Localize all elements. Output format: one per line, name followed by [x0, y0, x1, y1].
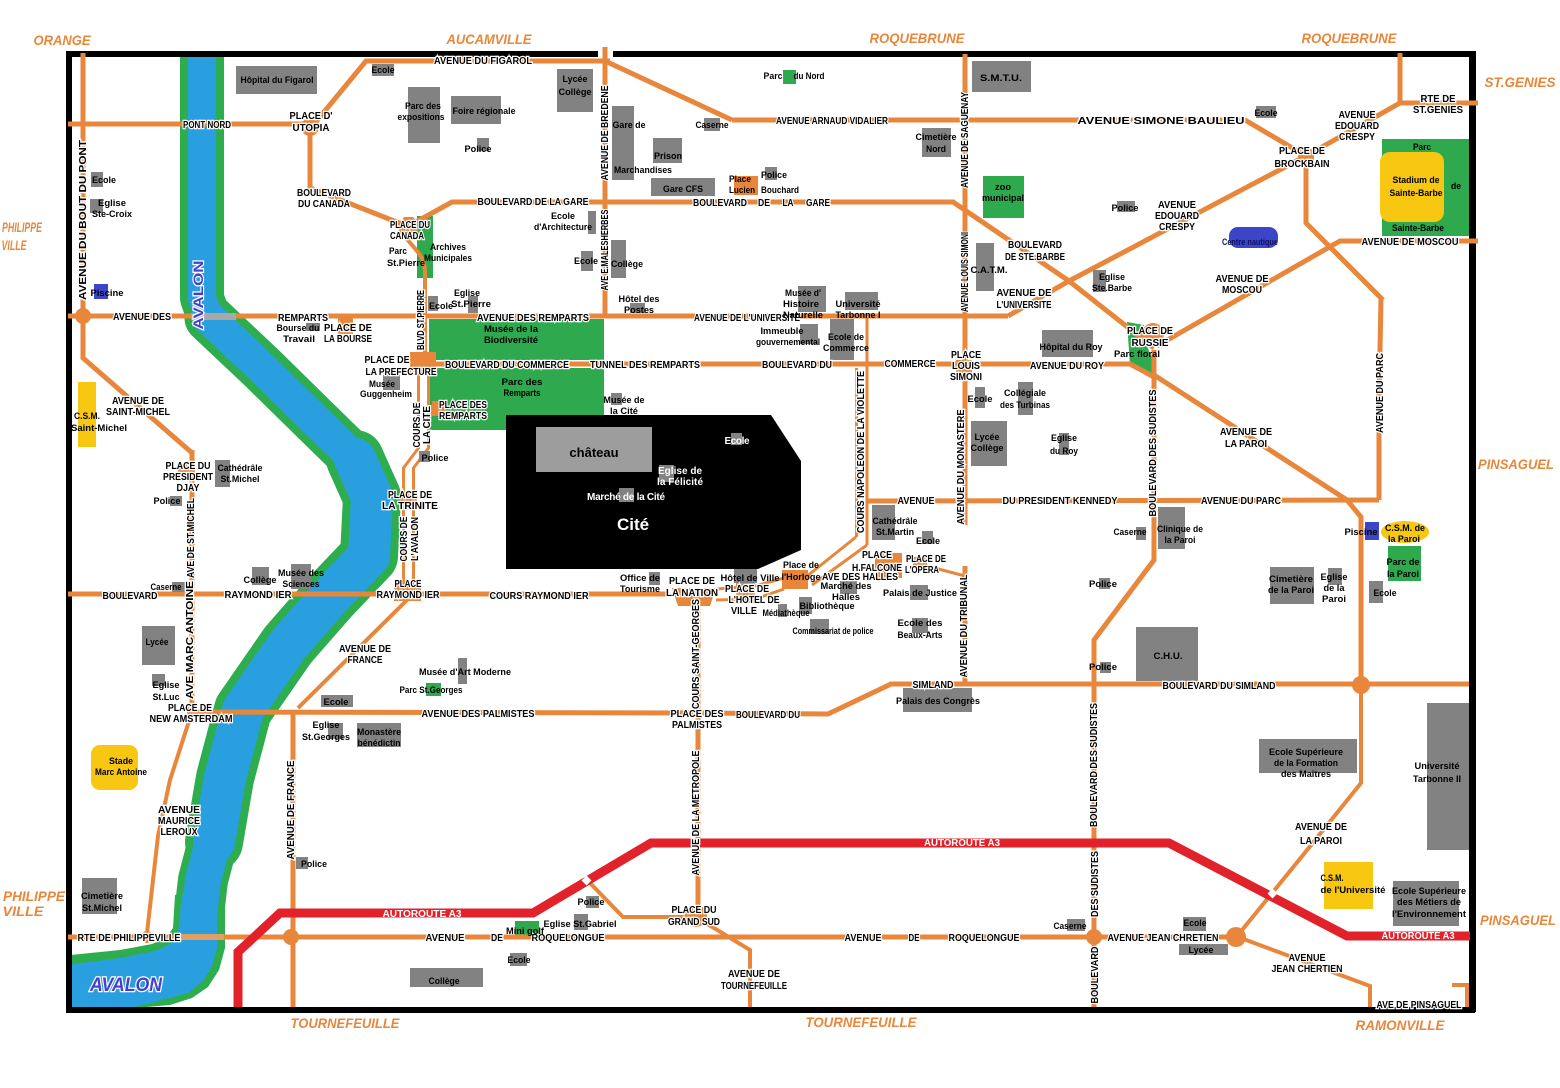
svg-text:PLACE DE: PLACE DE — [365, 355, 410, 366]
svg-text:Collège: Collège — [559, 87, 592, 98]
svg-text:PLACE DE: PLACE DE — [168, 703, 212, 714]
svg-text:L'UNIVERSITE: L'UNIVERSITE — [997, 300, 1052, 311]
svg-text:Parc: Parc — [764, 71, 783, 82]
svg-text:Gare de: Gare de — [613, 120, 646, 131]
svg-text:la Félicité: la Félicité — [657, 477, 703, 488]
svg-text:ROQUELONGUE: ROQUELONGUE — [949, 933, 1020, 944]
svg-text:Ecole: Ecole — [324, 697, 349, 708]
svg-text:Marchandises: Marchandises — [614, 165, 672, 176]
svg-text:Ecole: Ecole — [429, 301, 453, 312]
svg-text:Gare CFS: Gare CFS — [663, 184, 703, 195]
svg-text:PLACE DE: PLACE DE — [906, 554, 946, 565]
svg-text:AVENUE ARNAUD VIDALIER: AVENUE ARNAUD VIDALIER — [776, 116, 889, 127]
svg-text:AVENUE JEAN CHRETIEN: AVENUE JEAN CHRETIEN — [1108, 933, 1219, 944]
svg-text:Marché des: Marché des — [821, 581, 872, 592]
svg-text:AVENUE DE: AVENUE DE — [1295, 822, 1347, 833]
svg-text:PLACE DE: PLACE DE — [669, 576, 715, 587]
svg-text:Ecole Supérieure: Ecole Supérieure — [1269, 747, 1343, 758]
svg-text:BOULEVARD: BOULEVARD — [693, 198, 747, 209]
svg-text:RAYMOND IER: RAYMOND IER — [377, 590, 441, 601]
svg-text:municipal: municipal — [982, 193, 1024, 204]
svg-text:Université: Université — [1415, 761, 1460, 772]
svg-text:MOSCOU: MOSCOU — [1222, 285, 1262, 296]
svg-text:Piscine: Piscine — [91, 288, 124, 299]
svg-text:L'HOTEL DE: L'HOTEL DE — [729, 595, 780, 606]
svg-text:AUTOROUTE A3: AUTOROUTE A3 — [924, 838, 1000, 849]
svg-text:AVENUE LOUIS SIMONI: AVENUE LOUIS SIMONI — [960, 232, 971, 312]
svg-text:Musée de: Musée de — [604, 395, 645, 406]
svg-text:PLACE DU: PLACE DU — [166, 461, 211, 472]
svg-text:AUTOROUTE A3: AUTOROUTE A3 — [383, 909, 462, 920]
svg-text:Bourse du: Bourse du — [277, 323, 320, 334]
svg-text:BOULEVARD DES SUDISTES: BOULEVARD DES SUDISTES — [1148, 389, 1159, 516]
svg-text:Eglise: Eglise — [1321, 572, 1348, 583]
svg-text:Parc St.Georges: Parc St.Georges — [400, 685, 463, 696]
svg-text:JEAN CHERTIEN: JEAN CHERTIEN — [1272, 964, 1343, 975]
svg-text:COMMERCE: COMMERCE — [885, 359, 936, 370]
svg-text:Eglise: Eglise — [1051, 433, 1077, 444]
svg-text:C.H.U.: C.H.U. — [1154, 651, 1183, 662]
svg-text:AVENUE DE: AVENUE DE — [728, 969, 780, 980]
svg-text:DE STE.BARBE: DE STE.BARBE — [1005, 252, 1065, 263]
svg-text:Ecole: Ecole — [1255, 108, 1278, 119]
svg-text:Eglise: Eglise — [313, 720, 340, 731]
svg-text:PLACE D': PLACE D' — [290, 111, 333, 122]
svg-text:Eglise: Eglise — [454, 288, 480, 299]
svg-text:Parc des: Parc des — [405, 101, 441, 112]
svg-text:Bibliothèque: Bibliothèque — [800, 601, 855, 612]
svg-text:ROQUEBRUNE: ROQUEBRUNE — [870, 30, 966, 46]
svg-text:BOULEVARD: BOULEVARD — [1008, 240, 1062, 251]
svg-text:Caserne: Caserne — [1054, 921, 1087, 932]
svg-text:Lycée: Lycée — [975, 432, 1000, 443]
svg-text:Ecole: Ecole — [574, 256, 598, 267]
svg-text:PLACE DE: PLACE DE — [1279, 146, 1325, 157]
svg-text:Eglise: Eglise — [1099, 272, 1125, 283]
svg-text:AVENUE: AVENUE — [1158, 200, 1196, 211]
svg-text:Ecole: Ecole — [725, 436, 750, 447]
svg-text:de la Formation: de la Formation — [1274, 758, 1338, 769]
svg-text:AVENUE DE LA METROPOLE: AVENUE DE LA METROPOLE — [691, 750, 702, 875]
svg-text:LA: LA — [783, 198, 794, 209]
svg-text:PLACE DE: PLACE DE — [324, 323, 372, 334]
svg-text:Ecole des: Ecole des — [898, 618, 943, 629]
svg-text:NEW AMSTERDAM: NEW AMSTERDAM — [150, 714, 233, 725]
svg-text:AVENUE DE BREDENE: AVENUE DE BREDENE — [600, 85, 611, 180]
svg-text:Collège: Collège — [429, 976, 460, 987]
svg-text:AVENUE: AVENUE — [898, 496, 935, 507]
svg-text:Marché de la Cité: Marché de la Cité — [587, 492, 665, 503]
svg-text:Police: Police — [761, 170, 787, 181]
svg-text:BOULEVARD: BOULEVARD — [103, 591, 158, 602]
svg-text:Palais des Congrès: Palais des Congrès — [896, 696, 980, 707]
svg-text:d'Architecture: d'Architecture — [534, 222, 592, 233]
svg-text:Caserne: Caserne — [1114, 527, 1147, 538]
svg-text:AVENUE DES REMPARTS: AVENUE DES REMPARTS — [477, 313, 589, 324]
svg-text:Ecole: Ecole — [1184, 918, 1207, 929]
svg-text:Ecole de: Ecole de — [828, 332, 864, 343]
svg-text:PLACE DU: PLACE DU — [672, 905, 717, 916]
svg-text:la Paroi: la Paroi — [1165, 535, 1196, 546]
svg-text:Cathédrâle: Cathédrâle — [218, 463, 263, 474]
svg-text:Hôtel des: Hôtel des — [619, 294, 660, 305]
svg-text:Lycée: Lycée — [1189, 945, 1214, 956]
svg-text:Sainte-Barbe: Sainte-Barbe — [1392, 223, 1444, 234]
svg-text:C.S.M.: C.S.M. — [1321, 873, 1344, 884]
svg-text:LA TRINITE: LA TRINITE — [382, 501, 438, 512]
svg-text:Cathédrâle: Cathédrâle — [873, 516, 918, 527]
svg-text:AVENUE DE: AVENUE DE — [1216, 274, 1269, 285]
svg-text:AVENUE DU PARC: AVENUE DU PARC — [1201, 496, 1281, 507]
svg-text:BOULEVARD DE LA GARE: BOULEVARD DE LA GARE — [478, 197, 589, 208]
svg-text:AVE DE ST.MICHEL: AVE DE ST.MICHEL — [186, 498, 197, 578]
svg-text:de l'Université: de l'Université — [1321, 885, 1386, 896]
svg-text:Police: Police — [154, 496, 181, 507]
svg-text:Naturelle: Naturelle — [783, 310, 823, 321]
svg-text:ST.GENIES: ST.GENIES — [1485, 74, 1557, 90]
svg-text:Eglise St.Gabriel: Eglise St.Gabriel — [544, 919, 617, 930]
svg-text:Collège: Collège — [244, 575, 277, 586]
svg-text:Police: Police — [1089, 662, 1117, 673]
svg-text:Prison: Prison — [654, 151, 682, 162]
svg-text:AVENUE DU BOUT DU PONT: AVENUE DU BOUT DU PONT — [78, 140, 89, 300]
svg-text:PLACE DE: PLACE DE — [388, 490, 432, 501]
svg-text:PLACE DE: PLACE DE — [1127, 326, 1173, 337]
svg-text:Place: Place — [729, 174, 751, 185]
svg-text:Parc: Parc — [1413, 142, 1431, 153]
svg-text:Office de: Office de — [620, 573, 660, 584]
svg-text:Police: Police — [1089, 579, 1117, 590]
svg-text:de: de — [1451, 181, 1461, 192]
svg-text:SAINT-MICHEL: SAINT-MICHEL — [106, 407, 170, 418]
svg-text:BOULEVARD DU: BOULEVARD DU — [762, 360, 832, 371]
svg-text:Parc des: Parc des — [502, 377, 543, 388]
svg-text:PONT NORD: PONT NORD — [183, 120, 231, 131]
svg-text:COURS SAINT-GEORGES: COURS SAINT-GEORGES — [691, 599, 702, 709]
svg-text:C.S.M.: C.S.M. — [74, 411, 100, 422]
svg-text:Clinique de: Clinique de — [1157, 524, 1203, 535]
svg-text:BLVD ST.PIERRE: BLVD ST.PIERRE — [416, 290, 427, 350]
svg-text:BOULEVARD DU COMMERCE: BOULEVARD DU COMMERCE — [445, 360, 569, 371]
svg-text:Archives: Archives — [430, 242, 466, 253]
svg-text:Tarbonne II: Tarbonne II — [1413, 774, 1461, 785]
svg-text:AVENUE DU PARC: AVENUE DU PARC — [1375, 353, 1386, 433]
svg-text:Musée d'Art Moderne: Musée d'Art Moderne — [419, 667, 511, 678]
svg-text:St.Georges: St.Georges — [302, 732, 350, 743]
svg-text:BOULEVARD DU: BOULEVARD DU — [736, 710, 800, 721]
svg-text:Musée de la: Musée de la — [484, 324, 539, 335]
svg-text:PINSAGUEL: PINSAGUEL — [1480, 912, 1556, 928]
svg-text:LA CITE: LA CITE — [422, 406, 433, 444]
svg-text:Ecole: Ecole — [916, 536, 940, 547]
svg-text:AVENUE DU ROY: AVENUE DU ROY — [1030, 361, 1104, 372]
svg-text:Lycée: Lycée — [563, 74, 588, 85]
svg-text:AVALON: AVALON — [190, 261, 206, 330]
svg-text:AVENUE: AVENUE — [426, 933, 465, 944]
svg-text:PALMISTES: PALMISTES — [672, 720, 722, 731]
svg-text:Ecole: Ecole — [92, 175, 116, 186]
svg-text:Ecole: Ecole — [508, 955, 531, 966]
svg-text:PLACE: PLACE — [862, 550, 892, 561]
svg-text:gouvernemental: gouvernemental — [756, 337, 820, 348]
svg-text:Police: Police — [301, 859, 327, 870]
svg-text:RUSSIE: RUSSIE — [1132, 338, 1169, 349]
svg-text:St.Martin: St.Martin — [876, 527, 914, 538]
svg-text:AVENUE DE FRANCE: AVENUE DE FRANCE — [286, 760, 297, 859]
svg-text:PLACE DU: PLACE DU — [390, 220, 430, 231]
svg-text:PLACE: PLACE — [395, 579, 422, 590]
svg-text:Saint-Michel: Saint-Michel — [71, 423, 127, 434]
svg-text:DES SUDISTES: DES SUDISTES — [1090, 851, 1101, 917]
svg-text:L'OPERA: L'OPERA — [905, 565, 939, 576]
svg-text:Musée des: Musée des — [278, 568, 324, 579]
svg-text:Travail: Travail — [283, 334, 315, 345]
svg-text:PLACE DES: PLACE DES — [671, 709, 724, 720]
svg-text:la Cité: la Cité — [610, 406, 638, 417]
svg-text:TOURNEFEUILLE: TOURNEFEUILLE — [806, 1014, 918, 1030]
svg-text:Centre nautique: Centre nautique — [1222, 237, 1278, 248]
svg-text:Université: Université — [836, 299, 881, 310]
svg-text:LA PREFECTURE: LA PREFECTURE — [366, 367, 437, 378]
svg-text:LOUIS: LOUIS — [952, 361, 980, 372]
svg-text:expositions: expositions — [398, 112, 445, 123]
svg-text:Ecole: Ecole — [551, 211, 575, 222]
svg-text:REMPARTS: REMPARTS — [439, 411, 487, 422]
svg-text:Commerce: Commerce — [823, 343, 869, 354]
svg-text:St.Luc: St.Luc — [153, 692, 180, 703]
svg-text:Hôtel de Ville: Hôtel de Ville — [721, 573, 780, 584]
svg-text:Piscine: Piscine — [1345, 527, 1378, 538]
svg-text:Lycée: Lycée — [146, 637, 169, 648]
svg-text:AVENUE DU TRIBUNAL: AVENUE DU TRIBUNAL — [959, 575, 970, 678]
svg-text:ROQUEBRUNE: ROQUEBRUNE — [1302, 30, 1398, 46]
svg-text:L'AVALON: L'AVALON — [410, 517, 421, 561]
svg-text:UTOPIA: UTOPIA — [293, 123, 330, 134]
svg-text:Beaux-Arts: Beaux-Arts — [898, 630, 943, 641]
svg-text:Stade: Stade — [109, 756, 133, 767]
svg-text:CRESPY: CRESPY — [1159, 222, 1195, 233]
svg-text:Ecole Supérieure: Ecole Supérieure — [1392, 886, 1466, 897]
svg-text:Police: Police — [422, 453, 449, 464]
svg-text:DU CANADA: DU CANADA — [298, 199, 350, 210]
svg-text:du Roy: du Roy — [1050, 446, 1079, 457]
svg-text:Histoire: Histoire — [783, 299, 819, 310]
svg-text:Marc Antoine: Marc Antoine — [95, 767, 147, 778]
svg-text:VILLE: VILLE — [2, 237, 27, 253]
svg-text:Mini golf: Mini golf — [506, 926, 545, 937]
svg-text:PLACE: PLACE — [951, 350, 981, 361]
svg-text:DE: DE — [491, 933, 503, 944]
svg-text:C.S.M. de: C.S.M. de — [1385, 523, 1425, 534]
svg-text:Tarbonne I: Tarbonne I — [836, 310, 881, 321]
svg-text:Caserne: Caserne — [696, 120, 729, 131]
svg-text:AVENUE DU FIGAROL: AVENUE DU FIGAROL — [434, 56, 532, 67]
svg-text:PLACE DE: PLACE DE — [725, 584, 769, 595]
svg-text:St.Michel: St.Michel — [82, 903, 122, 914]
svg-text:BOULEVARD DES SUDISTES: BOULEVARD DES SUDISTES — [1089, 703, 1100, 827]
svg-text:des Métiers de: des Métiers de — [1397, 897, 1461, 908]
svg-text:AVENUE: AVENUE — [845, 933, 882, 944]
svg-text:BOULEVARD: BOULEVARD — [297, 188, 351, 199]
svg-text:St.Michel: St.Michel — [221, 474, 260, 485]
svg-text:Eglise de: Eglise de — [658, 466, 702, 477]
svg-text:Nord: Nord — [926, 144, 946, 155]
svg-text:zoo: zoo — [995, 182, 1011, 193]
svg-text:AVENUE DES PALMISTES: AVENUE DES PALMISTES — [422, 709, 535, 720]
svg-text:Cimetière: Cimetière — [81, 891, 123, 902]
svg-text:château: château — [569, 445, 618, 460]
svg-text:Ecole: Ecole — [372, 65, 395, 76]
svg-text:l'Environnement: l'Environnement — [1392, 909, 1467, 920]
svg-text:des Maîtres: des Maîtres — [1281, 769, 1331, 780]
svg-text:BROCKBAIN: BROCKBAIN — [1275, 159, 1330, 170]
svg-text:VILLE: VILLE — [3, 903, 45, 919]
svg-text:Ste-Croix: Ste-Croix — [92, 209, 133, 220]
svg-text:EDOUARD: EDOUARD — [1335, 121, 1379, 132]
svg-text:Place de: Place de — [783, 560, 819, 571]
svg-text:la Paroi: la Paroi — [1387, 569, 1419, 580]
svg-text:TUNNEL DES REMPARTS: TUNNEL DES REMPARTS — [590, 360, 700, 371]
svg-text:SIMLAND: SIMLAND — [913, 680, 954, 691]
svg-text:Parc de: Parc de — [1387, 557, 1420, 568]
svg-text:Caserne: Caserne — [151, 582, 182, 593]
svg-text:AVENUE SIMONE BAULIEU: AVENUE SIMONE BAULIEU — [1078, 116, 1245, 127]
svg-text:S.M.T.U.: S.M.T.U. — [980, 73, 1022, 84]
svg-text:RAYMOND IER: RAYMOND IER — [225, 590, 293, 601]
svg-text:COURS DE: COURS DE — [399, 516, 410, 561]
svg-text:DE: DE — [909, 933, 920, 944]
svg-text:Immeuble: Immeuble — [761, 326, 804, 337]
svg-text:l'Horloge: l'Horloge — [782, 572, 821, 583]
svg-text:Tourisme: Tourisme — [620, 584, 660, 595]
svg-text:Hôpital du Figarol: Hôpital du Figarol — [241, 75, 314, 86]
svg-text:Guggenheim: Guggenheim — [360, 389, 412, 400]
svg-text:DJAY: DJAY — [177, 483, 200, 494]
svg-text:VILLE: VILLE — [731, 606, 757, 617]
svg-text:GRAND SUD: GRAND SUD — [668, 917, 720, 928]
svg-text:Lucien: Lucien — [729, 185, 755, 196]
svg-text:Commissariat de police: Commissariat de police — [793, 626, 874, 637]
svg-text:de la Paroi: de la Paroi — [1268, 585, 1314, 596]
svg-text:Stadium de: Stadium de — [1393, 175, 1440, 186]
svg-text:RAMONVILLE: RAMONVILLE — [1356, 1017, 1446, 1033]
svg-text:AVENUE DU MONASTERE: AVENUE DU MONASTERE — [956, 409, 967, 524]
svg-text:COURS RAYMOND IER: COURS RAYMOND IER — [490, 591, 590, 602]
svg-text:AVALON: AVALON — [89, 975, 163, 996]
svg-text:AVE E.MALESHERBES: AVE E.MALESHERBES — [600, 209, 611, 290]
svg-text:AVENUE DE: AVENUE DE — [112, 396, 164, 407]
svg-text:Eglise: Eglise — [153, 680, 180, 691]
svg-text:LEROUX: LEROUX — [161, 827, 198, 838]
svg-text:AVENUE DE MOSCOU: AVENUE DE MOSCOU — [1362, 237, 1459, 248]
svg-text:Monastère: Monastère — [357, 727, 401, 738]
svg-text:ST.GENIES: ST.GENIES — [1413, 105, 1463, 116]
svg-text:AVENUE DE: AVENUE DE — [997, 288, 1052, 299]
svg-text:EDOUARD: EDOUARD — [1155, 211, 1199, 222]
svg-text:Police: Police — [578, 897, 605, 908]
svg-text:GARE: GARE — [806, 198, 830, 209]
svg-text:BOULEVARD: BOULEVARD — [1090, 947, 1101, 1004]
svg-text:Paroi: Paroi — [1322, 594, 1346, 605]
svg-text:FRANCE: FRANCE — [348, 655, 383, 666]
svg-text:St.Pierre: St.Pierre — [387, 258, 425, 269]
svg-text:Bouchard: Bouchard — [761, 185, 799, 196]
svg-text:MAURICE: MAURICE — [158, 816, 200, 827]
svg-text:PLACE DES: PLACE DES — [439, 400, 487, 411]
svg-text:Eglise: Eglise — [98, 198, 126, 209]
svg-text:Cité: Cité — [617, 515, 649, 534]
svg-text:DU PRESIDENT KENNEDY: DU PRESIDENT KENNEDY — [1003, 496, 1118, 507]
svg-text:DE: DE — [758, 198, 770, 209]
svg-text:la Paroi: la Paroi — [1388, 534, 1420, 545]
svg-text:CANADA: CANADA — [390, 231, 424, 242]
svg-text:Palais de Justice: Palais de Justice — [883, 588, 957, 599]
svg-text:bénédictin: bénédictin — [358, 738, 401, 749]
svg-text:CRESPY: CRESPY — [1339, 132, 1375, 143]
svg-text:Parc: Parc — [389, 246, 407, 257]
svg-text:Ecole: Ecole — [968, 394, 993, 405]
svg-text:AVENUE DE: AVENUE DE — [339, 644, 391, 655]
svg-text:TOURNEFEUILLE: TOURNEFEUILLE — [721, 981, 787, 992]
svg-text:AUTOROUTE A3: AUTOROUTE A3 — [1382, 931, 1455, 942]
svg-text:AVE DE PINSAGUEL: AVE DE PINSAGUEL — [1377, 1000, 1462, 1011]
svg-text:AVENUE DES: AVENUE DES — [113, 312, 171, 323]
svg-text:C.A.T.M.: C.A.T.M. — [971, 265, 1008, 276]
svg-text:AUCAMVILLE: AUCAMVILLE — [446, 31, 533, 47]
svg-text:AVENUE DE SAGUENAY: AVENUE DE SAGUENAY — [960, 92, 971, 188]
svg-text:Cimetière: Cimetière — [916, 132, 957, 143]
svg-text:Collégiale: Collégiale — [1004, 388, 1046, 399]
svg-text:RTE DE: RTE DE — [1421, 94, 1456, 105]
svg-text:Ste.Barbe: Ste.Barbe — [1092, 283, 1132, 294]
svg-text:LA BOURSE: LA BOURSE — [324, 334, 372, 345]
svg-text:Remparts: Remparts — [504, 388, 541, 399]
svg-text:AVENUE: AVENUE — [1339, 110, 1376, 121]
svg-text:Ecole: Ecole — [1374, 588, 1397, 599]
svg-text:Collège: Collège — [971, 443, 1004, 454]
svg-text:RTE DE PHILIPPEVILLE: RTE DE PHILIPPEVILLE — [78, 933, 181, 944]
svg-text:COURS NAPOLEON DE LA VIOLETTE: COURS NAPOLEON DE LA VIOLETTE — [856, 371, 867, 533]
svg-text:LA NATION: LA NATION — [666, 588, 718, 599]
svg-text:PHILIPPE: PHILIPPE — [3, 888, 66, 904]
svg-text:Sciences: Sciences — [283, 579, 320, 590]
svg-text:BOULEVARD DU SIMLAND: BOULEVARD DU SIMLAND — [1163, 681, 1276, 692]
svg-text:Biodiversité: Biodiversité — [484, 335, 538, 346]
svg-text:St.Pierre: St.Pierre — [451, 299, 491, 310]
svg-text:SIMONI: SIMONI — [950, 372, 982, 383]
svg-text:Cimetière: Cimetière — [1269, 574, 1313, 585]
svg-text:Police: Police — [1112, 203, 1139, 214]
svg-text:Musée d': Musée d' — [785, 288, 821, 299]
svg-text:PINSAGUEL: PINSAGUEL — [1478, 456, 1554, 472]
svg-text:Postes: Postes — [624, 305, 654, 316]
svg-text:LA PAROI: LA PAROI — [1225, 439, 1267, 450]
svg-text:Sainte-Barbe: Sainte-Barbe — [1390, 188, 1443, 199]
svg-text:TOURNEFEUILLE: TOURNEFEUILLE — [291, 1015, 401, 1031]
svg-text:Foire régionale: Foire régionale — [453, 106, 516, 117]
svg-text:de la: de la — [1324, 583, 1346, 594]
svg-text:Parc floral: Parc floral — [1114, 349, 1160, 360]
svg-text:AVE MARC ANTOINE: AVE MARC ANTOINE — [185, 581, 196, 699]
svg-text:AVENUE: AVENUE — [1289, 953, 1326, 964]
svg-text:PHILIPPE: PHILIPPE — [2, 219, 42, 235]
svg-text:des Turbinas: des Turbinas — [1000, 400, 1050, 411]
svg-text:LA PAROI: LA PAROI — [1300, 836, 1342, 847]
svg-text:Hôpital du Roy: Hôpital du Roy — [1040, 342, 1104, 353]
svg-text:du Nord: du Nord — [794, 71, 825, 82]
svg-text:Police: Police — [465, 144, 492, 155]
svg-text:ORANGE: ORANGE — [34, 32, 92, 48]
